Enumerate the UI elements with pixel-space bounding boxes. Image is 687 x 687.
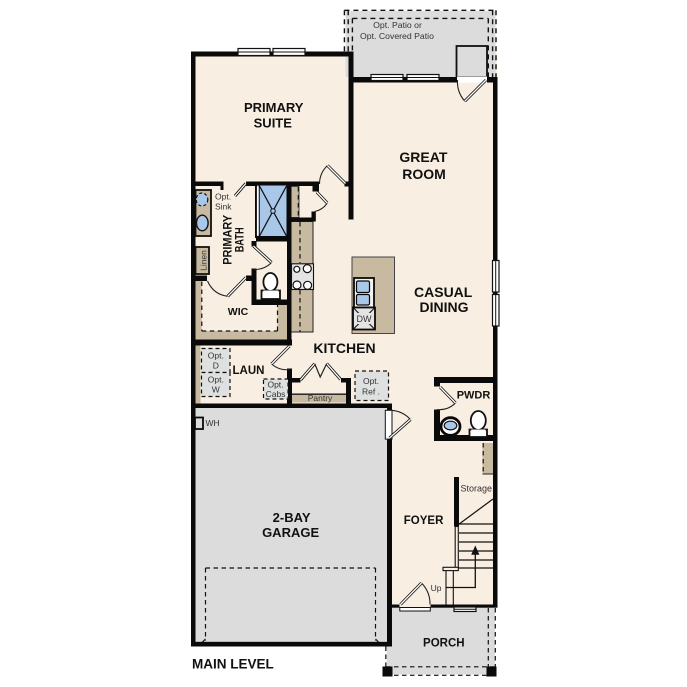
svg-text:PWDR: PWDR (457, 390, 491, 402)
svg-text:Ref .: Ref . (362, 387, 380, 397)
svg-text:Opt. Patio or: Opt. Patio or (373, 20, 422, 30)
svg-text:FOYER: FOYER (404, 515, 444, 527)
svg-text:Linen: Linen (199, 250, 209, 271)
svg-text:CASUAL: CASUAL (414, 284, 473, 300)
svg-text:Opt.: Opt. (208, 351, 224, 361)
svg-text:WH: WH (206, 418, 220, 428)
svg-text:MAIN LEVEL: MAIN LEVEL (192, 657, 274, 672)
svg-text:PORCH: PORCH (423, 637, 465, 649)
svg-text:Opt.: Opt. (208, 375, 224, 385)
svg-text:KITCHEN: KITCHEN (313, 340, 375, 356)
svg-text:DINING: DINING (420, 299, 469, 315)
svg-text:2-BAY: 2-BAY (273, 510, 311, 525)
svg-text:PRIMARY: PRIMARY (244, 100, 304, 115)
svg-text:GREAT: GREAT (399, 149, 447, 165)
svg-text:SUITE: SUITE (254, 115, 293, 130)
svg-text:DW: DW (357, 314, 372, 324)
svg-text:D: D (213, 361, 219, 371)
svg-text:LAUN: LAUN (233, 365, 265, 377)
svg-text:WIC: WIC (228, 306, 249, 318)
svg-text:Cabs: Cabs (266, 389, 286, 399)
svg-text:GARAGE: GARAGE (262, 525, 319, 540)
svg-text:ROOM: ROOM (402, 166, 446, 182)
svg-text:Opt. Covered Patio: Opt. Covered Patio (360, 31, 434, 41)
svg-text:Opt.: Opt. (215, 191, 231, 201)
svg-text:Sink: Sink (215, 202, 232, 212)
svg-text:Pantry: Pantry (308, 393, 333, 403)
svg-text:W: W (212, 385, 220, 395)
svg-text:Up: Up (431, 583, 442, 593)
svg-text:Opt.: Opt. (363, 376, 379, 386)
svg-text:Storage: Storage (461, 483, 493, 493)
